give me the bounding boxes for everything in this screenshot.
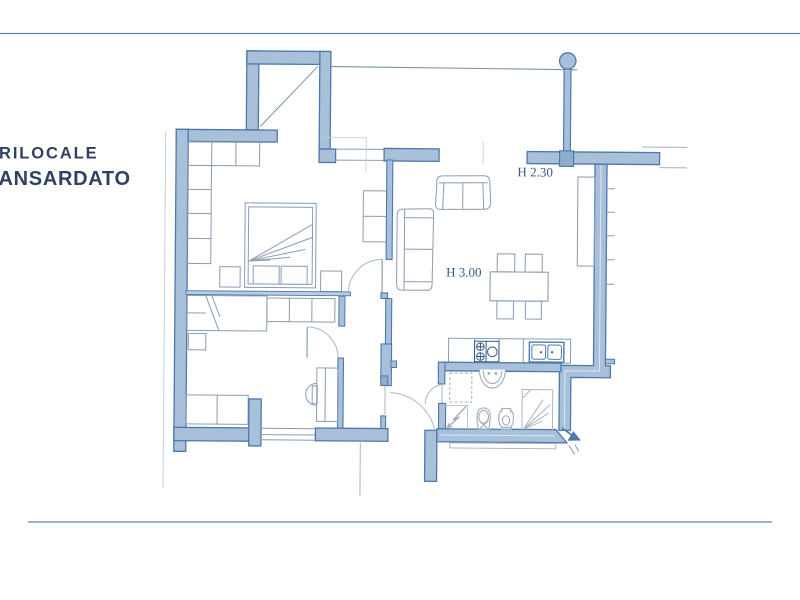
svg-text:ANSARDATO: ANSARDATO bbox=[0, 168, 131, 190]
svg-text:H 3.00: H 3.00 bbox=[446, 264, 482, 279]
svg-text:H 2.30: H 2.30 bbox=[517, 164, 553, 179]
svg-text:RILOCALE: RILOCALE bbox=[0, 145, 99, 163]
